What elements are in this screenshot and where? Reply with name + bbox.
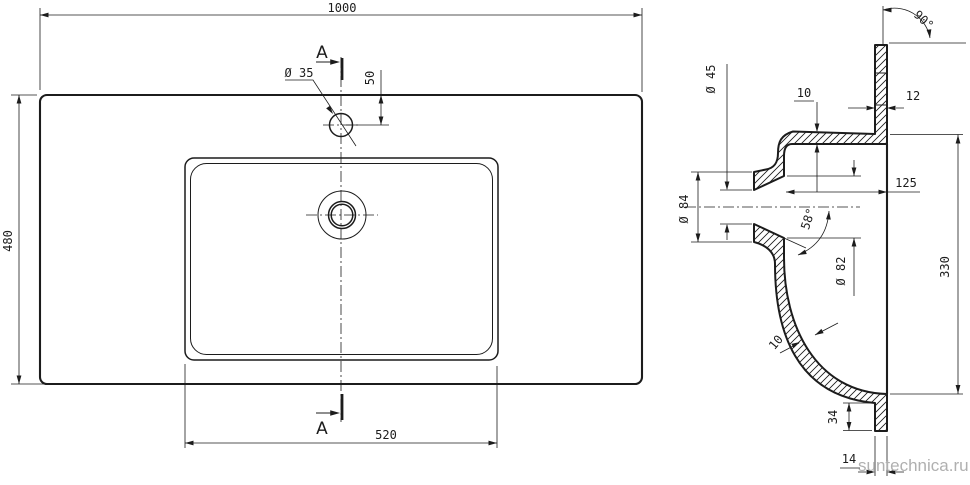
section-marker-bottom: A xyxy=(316,419,328,439)
dim-drain-boss-label: Ø 84 xyxy=(677,195,691,224)
dim-drain-bore-label: Ø 45 xyxy=(704,65,718,94)
washbasin-technical-drawing: 1000 480 520 50 Ø 35 A A xyxy=(0,0,970,485)
plan-view: 1000 480 520 50 Ø 35 A A xyxy=(1,1,642,448)
watermark-text: suntechnica.ru xyxy=(858,456,969,475)
dim-foot-height-label: 34 xyxy=(826,410,840,424)
dim-overall-width-label: 1000 xyxy=(328,1,357,15)
dim-faucet-offset-label: 50 xyxy=(363,71,377,85)
basin-inner-rim xyxy=(191,164,493,355)
dim-overall-depth-label: 480 xyxy=(1,230,15,252)
section-shell-upper xyxy=(754,45,887,190)
basin-outer-rim xyxy=(185,158,498,360)
dim-basin-width-label: 520 xyxy=(375,428,397,442)
dim-drain-opening-label: Ø 82 xyxy=(834,257,848,286)
dim-taper-angle-label: 58° xyxy=(798,206,818,231)
dim-faucet-dia-label: Ø 35 xyxy=(285,66,314,80)
dim-overall-height-label: 330 xyxy=(938,256,952,278)
section-marker-top: A xyxy=(316,43,328,63)
dim-top-thickness-label: 10 xyxy=(797,86,811,100)
dim-foot-width-label: 14 xyxy=(842,452,856,466)
dim-drain-to-back-label: 125 xyxy=(895,176,917,190)
technical-drawing-page: 1000 480 520 50 Ø 35 A A xyxy=(0,0,970,485)
dim-shell-thickness-label: 10 xyxy=(766,332,786,352)
section-view: 90° 10 12 Ø 45 Ø 84 125 58° xyxy=(677,6,966,476)
section-shell-lower xyxy=(754,224,887,431)
dim-edge-thickness-label: 12 xyxy=(906,89,920,103)
dim-corner-angle-label: 90° xyxy=(911,8,936,33)
